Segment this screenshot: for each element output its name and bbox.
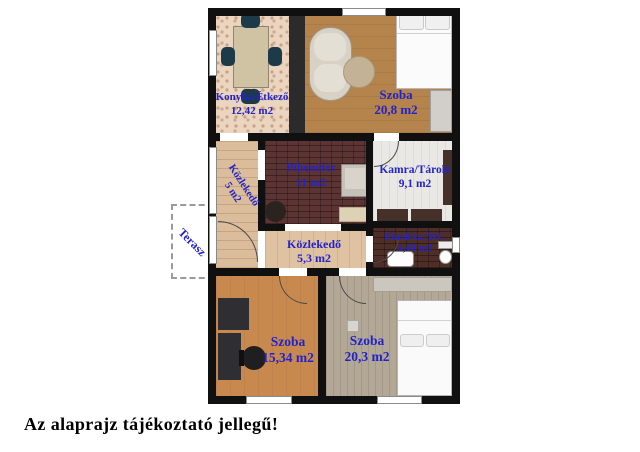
door-opening-kitchen-hall — [220, 133, 248, 141]
side-table — [347, 320, 359, 332]
wall-mid-band — [216, 268, 452, 276]
pillow — [399, 14, 424, 30]
wall-bedrooms-divider — [318, 268, 326, 396]
sofa-cushion — [314, 33, 346, 61]
door-opening-lounge-hall — [285, 224, 341, 231]
wardrobe — [218, 298, 249, 330]
wall-outer-right — [452, 8, 460, 404]
room-name: Szoba — [346, 87, 446, 102]
label-lounge: Pihenőtér 11 m2 — [261, 160, 361, 190]
blanket-fold — [397, 33, 451, 34]
room-area: 4,46 m2 — [370, 243, 460, 254]
room-area: 12,42 m2 — [202, 104, 302, 118]
room-area: 9,1 m2 — [365, 177, 465, 191]
sofa-cushion — [314, 64, 346, 92]
label-pantry: Kamra/Tároló 9,1 m2 — [365, 163, 465, 191]
doormat — [339, 207, 367, 222]
room-name: Kamra/Tároló — [365, 163, 465, 177]
room-name: Pihenőtér — [261, 160, 361, 175]
wall-pantry-bath — [373, 221, 452, 228]
label-hall-horizontal: Közlekedő 5,3 m2 — [264, 237, 364, 265]
window-kitchen-left — [209, 30, 217, 76]
window-bedroom-right-bottom — [377, 396, 422, 404]
floor-plan-page: Terasz — [0, 0, 640, 452]
disclaimer-caption: Az alaprajz tájékoztató jellegű! — [24, 414, 278, 435]
room-area: 11 m2 — [261, 175, 361, 190]
door-opening-bedroom-right — [339, 268, 366, 276]
window-bedroom-left-bottom — [246, 396, 292, 404]
dining-chair — [221, 47, 235, 66]
blanket-fold — [398, 320, 451, 321]
wardrobe-low — [373, 277, 452, 292]
label-bathroom: Fürdősz./WC 4,46 m2 — [370, 232, 460, 254]
dining-table — [233, 26, 269, 88]
pillow — [426, 334, 450, 347]
wall-top-band — [216, 133, 452, 141]
door-opening-bedroom-pantry — [374, 133, 399, 141]
wall-outer-top — [208, 8, 460, 16]
door-opening-bedroom-left — [279, 268, 307, 276]
room-area: 5,3 m2 — [264, 251, 364, 265]
room-name: Fürdősz./WC — [370, 232, 460, 243]
round-rug — [343, 56, 375, 88]
room-area: 20,8 m2 — [346, 102, 446, 117]
room-name: Konyha/Étkező — [202, 90, 302, 104]
window-bedroom-top — [342, 8, 386, 16]
room-name: Közlekedő — [264, 237, 364, 251]
dining-chair — [268, 47, 282, 66]
label-bedroom-top: Szoba 20,8 m2 — [346, 87, 446, 117]
room-area: 20,3 m2 — [317, 349, 417, 365]
label-bedroom-right: Szoba 20,3 m2 — [317, 333, 417, 365]
window-terrace-glazing — [209, 147, 217, 214]
pillow — [425, 14, 450, 30]
room-name: Szoba — [317, 333, 417, 349]
label-kitchen: Konyha/Étkező 12,42 m2 — [202, 90, 302, 118]
stool — [265, 201, 286, 222]
